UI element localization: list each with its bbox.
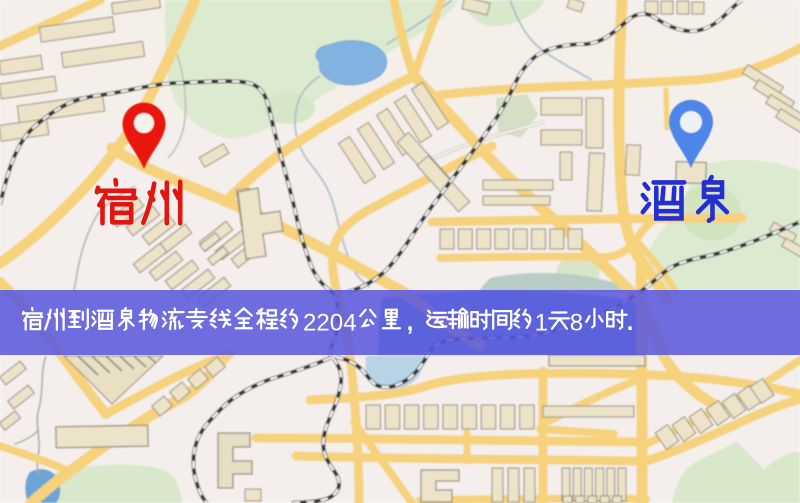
svg-text:.: . [627,309,634,336]
svg-text:4: 4 [343,310,356,337]
svg-text:2: 2 [316,310,329,337]
svg-text:2: 2 [303,310,316,337]
svg-text:8: 8 [570,310,583,337]
svg-text:0: 0 [330,310,343,337]
svg-text:,: , [407,309,414,336]
svg-text:1: 1 [535,310,548,337]
